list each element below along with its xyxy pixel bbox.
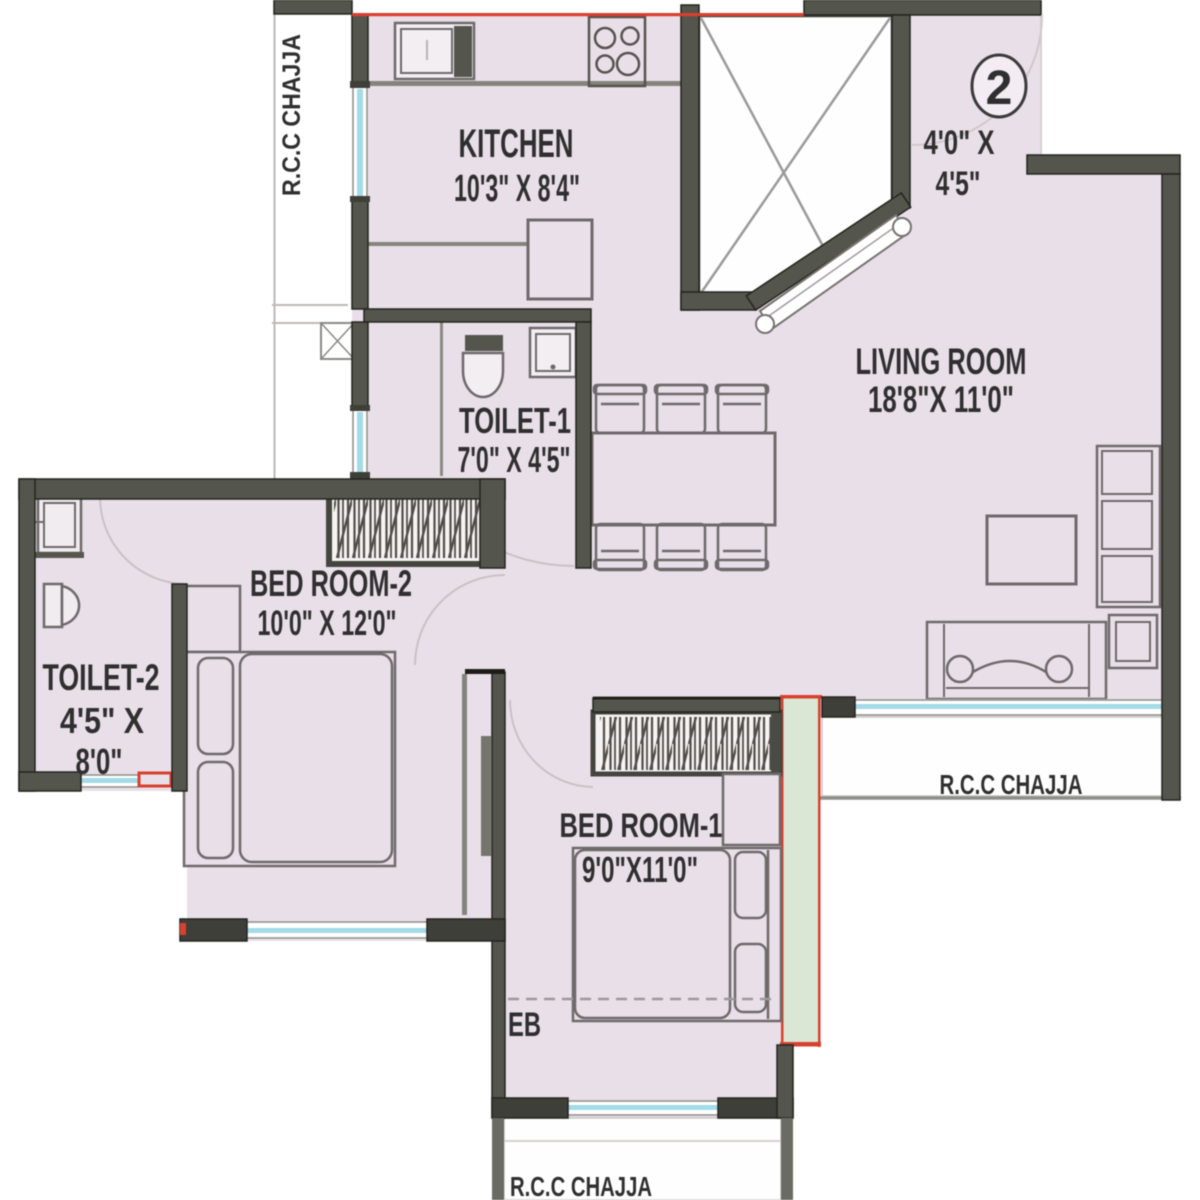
- svg-text:2: 2: [986, 62, 1013, 115]
- svg-text:R.C.C CHAJJA: R.C.C CHAJJA: [940, 769, 1083, 800]
- svg-text:4'5": 4'5": [936, 165, 981, 203]
- svg-text:LIVING ROOM: LIVING ROOM: [856, 341, 1027, 382]
- svg-text:R.C.C CHAJJA: R.C.C CHAJJA: [278, 34, 306, 196]
- svg-text:7'0" X 4'5": 7'0" X 4'5": [458, 439, 571, 480]
- svg-text:BED ROOM-2: BED ROOM-2: [250, 563, 412, 604]
- svg-text:10'3" X 8'4": 10'3" X 8'4": [454, 168, 580, 210]
- svg-text:TOILET-2: TOILET-2: [43, 657, 160, 698]
- svg-text:18'8"X 11'0": 18'8"X 11'0": [868, 379, 1014, 420]
- svg-text:EB: EB: [508, 1006, 541, 1044]
- svg-text:TOILET-1: TOILET-1: [459, 400, 571, 441]
- svg-text:KITCHEN: KITCHEN: [459, 122, 574, 166]
- svg-text:9'0"X11'0": 9'0"X11'0": [582, 849, 698, 890]
- svg-text:4'0" X: 4'0" X: [924, 124, 995, 162]
- svg-text:BED ROOM-1: BED ROOM-1: [560, 807, 723, 845]
- svg-text:R.C.C CHAJJA: R.C.C CHAJJA: [510, 1171, 652, 1200]
- svg-text:10'0" X 12'0": 10'0" X 12'0": [258, 604, 397, 643]
- svg-text:4'5" X: 4'5" X: [60, 700, 144, 741]
- svg-text:8'0": 8'0": [76, 741, 123, 782]
